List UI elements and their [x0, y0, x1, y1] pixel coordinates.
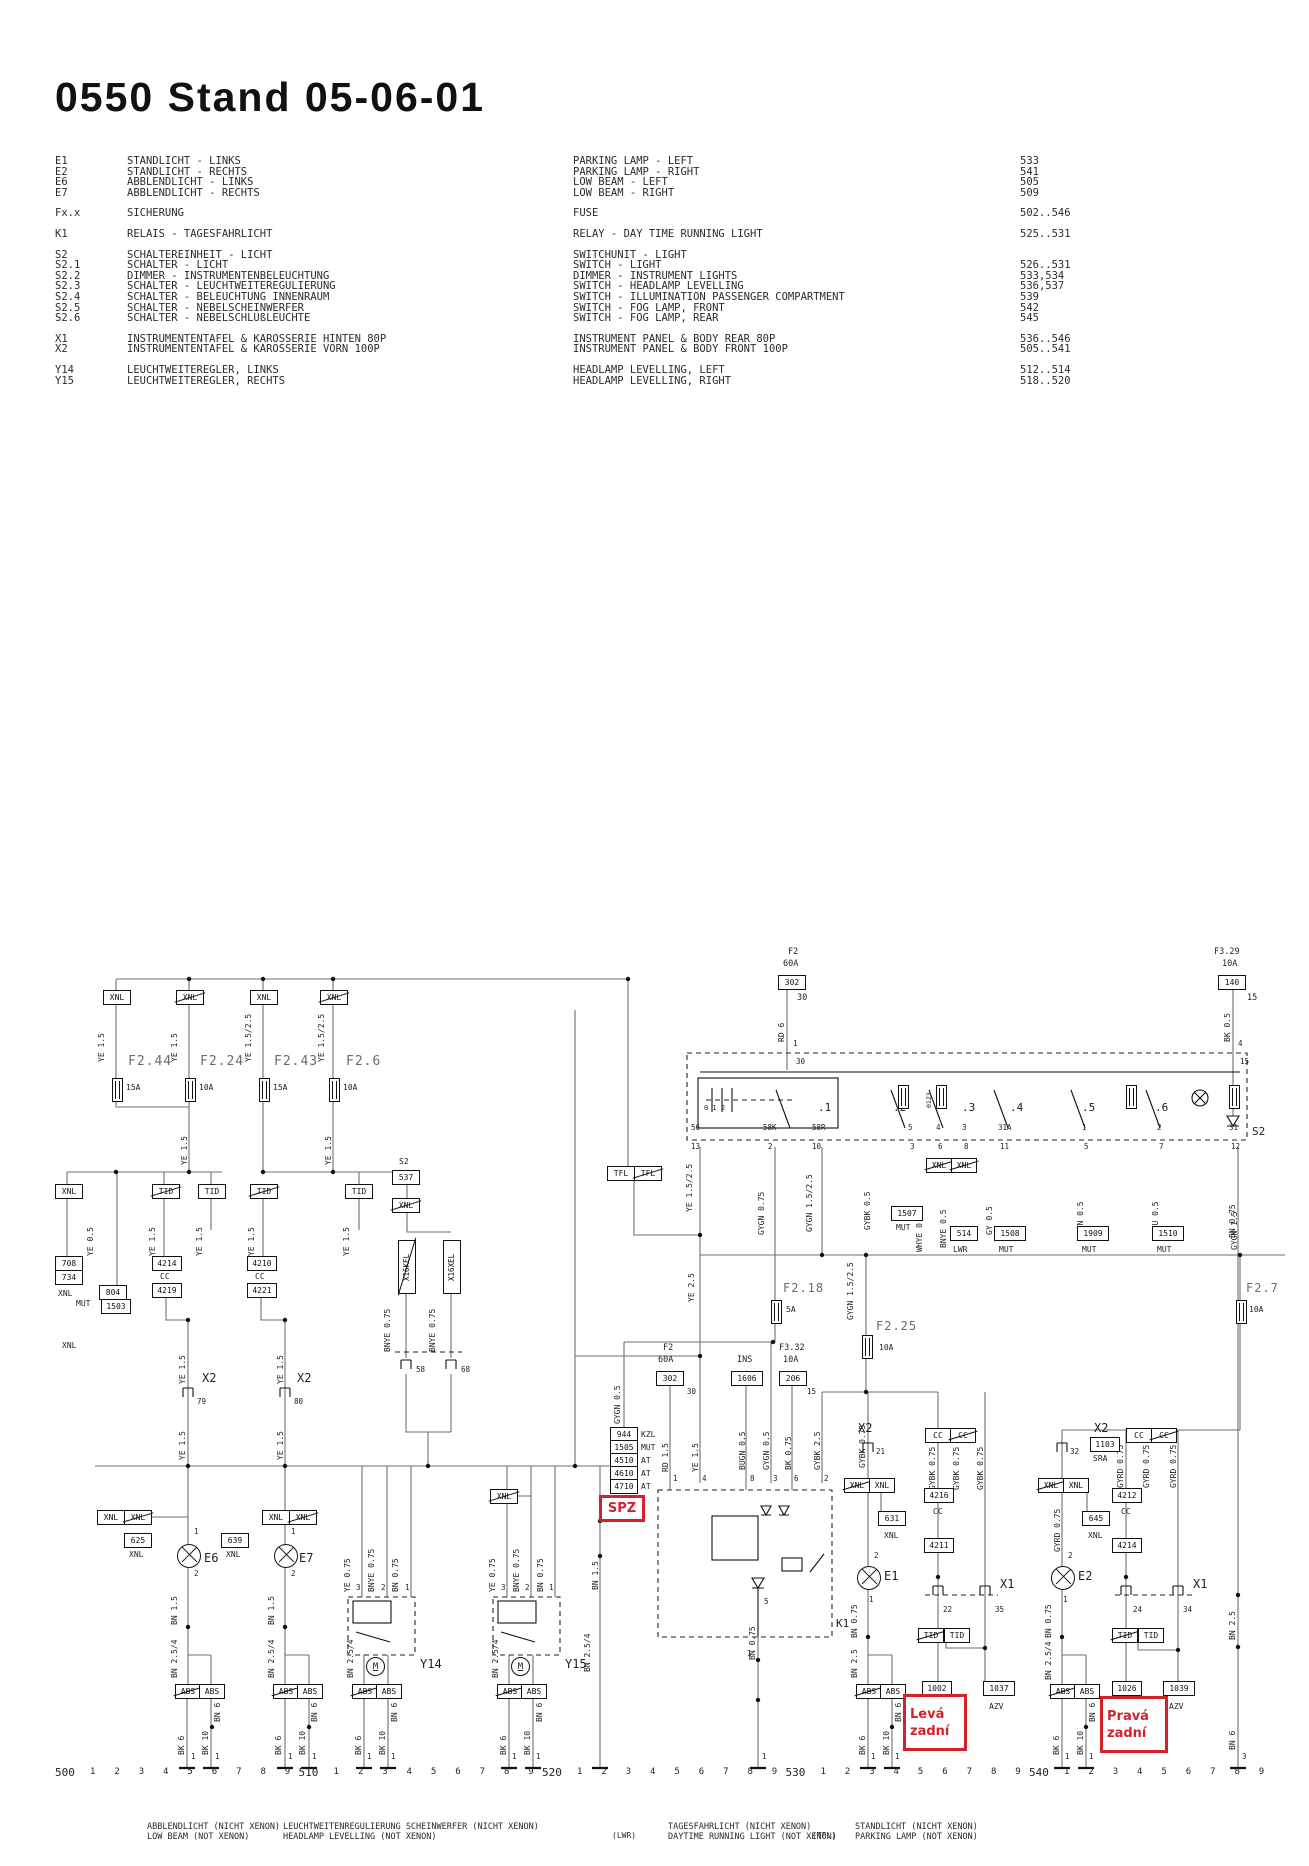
schematic-label: 2: [768, 1143, 773, 1151]
schematic-label: 58: [416, 1366, 425, 1374]
wire-label: BK 10: [524, 1731, 532, 1755]
schematic-label: AZV: [1169, 1703, 1183, 1711]
scale-tick-label: 1: [334, 1767, 339, 1777]
schematic-label: 10: [812, 1143, 821, 1151]
connector-box: 1909: [1077, 1226, 1109, 1241]
fuse-symbol: [112, 1078, 123, 1102]
schematic-label: X1: [1193, 1580, 1207, 1588]
schematic-label: 12: [1231, 1143, 1240, 1151]
schematic-label: 5: [1084, 1143, 1089, 1151]
scale-tick-label: 6: [1186, 1767, 1191, 1777]
schematic-label: 3: [501, 1584, 506, 1592]
schematic-label: 5A: [786, 1306, 796, 1314]
schematic-label: MUT: [1157, 1246, 1171, 1254]
wire-label: BK 10: [1077, 1731, 1085, 1755]
connector-box: TID: [152, 1184, 180, 1199]
scale-tick-label: 1: [1064, 1767, 1069, 1777]
schematic-label: 1: [312, 1753, 317, 1761]
annotation-text: SPZ: [608, 1500, 636, 1517]
schematic-label: 4: [936, 1124, 941, 1132]
schematic-label: Y15: [565, 1660, 587, 1668]
annotation-text: zadní: [1107, 1725, 1146, 1742]
wire-label: YE 1.5: [277, 1431, 285, 1460]
scale-tick-label: 4: [894, 1767, 899, 1777]
connector-box: 1510: [1152, 1226, 1184, 1241]
schematic-label: 2: [874, 1552, 879, 1560]
wire-label: BK 0.75: [785, 1436, 793, 1470]
connector-box: XNL: [869, 1478, 895, 1493]
connector-box: CC: [1151, 1428, 1177, 1443]
connector-box: TID: [198, 1184, 226, 1199]
schematic-label: 2: [381, 1584, 386, 1592]
wire-label: BK 6: [1053, 1736, 1061, 1755]
schematic-label: 5: [908, 1124, 913, 1132]
scale-tick-label: 3: [869, 1767, 874, 1777]
wire-label: GYGN 0.5: [763, 1431, 771, 1470]
schematic-label: 10A: [1249, 1306, 1263, 1314]
schematic-label: 2: [525, 1584, 530, 1592]
schematic-label: 15A: [126, 1084, 140, 1092]
connector-box: 708: [55, 1256, 83, 1271]
connector-box: 1026: [1112, 1681, 1142, 1696]
wire-label: BUGN 0.5: [739, 1431, 747, 1470]
schematic-label: 1: [673, 1475, 678, 1483]
schematic-label: 6: [794, 1475, 799, 1483]
connector-box: ABS: [297, 1684, 323, 1699]
wire-label: GYBK 2.5: [814, 1431, 822, 1470]
schematic-label: 30: [797, 994, 807, 1002]
schematic-label: 13: [691, 1143, 700, 1151]
connector-box: ABS: [856, 1684, 882, 1699]
schematic-label: XNL: [226, 1551, 240, 1559]
connector-box: CC: [925, 1428, 951, 1443]
schematic-label: X2: [1094, 1424, 1108, 1432]
schematic-label: 1: [288, 1753, 293, 1761]
schematic-label: 0 1 2: [704, 1104, 725, 1112]
connector-box: TID: [1112, 1628, 1138, 1643]
connector-box: 1103: [1090, 1437, 1120, 1452]
connector-box: 140: [1218, 975, 1246, 990]
schematic-label: XNL: [1088, 1532, 1102, 1540]
schematic-label: CC: [1121, 1508, 1131, 1516]
connector-box: XNL: [1038, 1478, 1064, 1493]
wire-label: GYGN 0.5: [614, 1385, 622, 1424]
wire-label: YE 1.5: [179, 1431, 187, 1460]
wire-label: YE 2.5: [688, 1273, 696, 1302]
schematic-label: 56: [691, 1124, 700, 1132]
annotation-spz: SPZ: [599, 1495, 645, 1522]
scale-tick-label: 4: [163, 1767, 168, 1777]
component-ref-label: F2.25: [876, 1322, 917, 1330]
wire-label: YE 1.5: [149, 1227, 157, 1256]
connector-box: TID: [250, 1184, 278, 1199]
schematic-label: F2: [663, 1344, 673, 1352]
scale-tick-label: 2: [1088, 1767, 1093, 1777]
wire-label: YE 1.5: [343, 1227, 351, 1256]
wire-label: GYBK 0.5: [864, 1191, 872, 1230]
wire-label: BK 10: [202, 1731, 210, 1755]
schematic-label: E1: [884, 1572, 898, 1580]
scale-tick-label: 5: [918, 1767, 923, 1777]
schematic-label: 1: [536, 1753, 541, 1761]
schematic-label: 2: [1068, 1552, 1073, 1560]
schematic-label: Y14: [420, 1660, 442, 1668]
wire-label: BN 1.5: [592, 1561, 600, 1590]
wire-label: YE 0.75: [344, 1558, 352, 1592]
schematic-label: SRA: [1093, 1455, 1107, 1463]
scale-block-label: 500: [55, 1766, 75, 1779]
wire-label: BK 10: [379, 1731, 387, 1755]
schematic-label: MUT: [641, 1444, 655, 1452]
scale-tick-label: 4: [407, 1767, 412, 1777]
schematic-label: LWR: [953, 1246, 967, 1254]
connector-box: XNL: [320, 990, 348, 1005]
connector-box: 1606: [731, 1371, 763, 1386]
schematic-label: 31: [1229, 1124, 1238, 1132]
wire-label: BN 6: [1229, 1731, 1237, 1750]
scale-block-label: 510: [299, 1766, 319, 1779]
annotation-text: zadní: [910, 1723, 949, 1740]
lamp-e6: [177, 1544, 201, 1568]
schematic-label: CC: [933, 1508, 943, 1516]
connector-box: TID: [345, 1184, 373, 1199]
schematic-label: 4: [1238, 1040, 1243, 1048]
schematic-label: 7: [1159, 1143, 1164, 1151]
connector-box: 302: [778, 975, 806, 990]
wire-label: YE 1.5/2.5: [686, 1164, 694, 1212]
schematic-label: 6: [938, 1143, 943, 1151]
connector-box: TID: [1138, 1628, 1164, 1643]
scale-tick-label: 8: [260, 1767, 265, 1777]
connector-box: ABS: [199, 1684, 225, 1699]
wire-label: BNYE 0.75: [429, 1309, 437, 1352]
wire-label: GY 0.5: [986, 1206, 994, 1235]
schematic-label: 8: [964, 1143, 969, 1151]
connector-box: ABS: [521, 1684, 547, 1699]
schematic-label: MUT: [76, 1300, 90, 1308]
fuse-symbol: [1236, 1300, 1247, 1324]
schematic-label: 5: [764, 1598, 769, 1606]
wire-layer: [0, 0, 1309, 1866]
scale-tick-label: 7: [236, 1767, 241, 1777]
scale-tick-label: 3: [1113, 1767, 1118, 1777]
schematic-label: 1: [1082, 1124, 1087, 1132]
schematic-label: 24: [1133, 1606, 1142, 1614]
wire-label: BN 0.75: [392, 1558, 400, 1592]
schematic-label: AT: [641, 1470, 651, 1478]
wire-label: YE 1.5/2.5: [245, 1014, 253, 1062]
connector-box: X16KEL: [398, 1240, 416, 1294]
annotation-text: Levá: [910, 1706, 944, 1723]
wire-label: YE 0.5: [87, 1227, 95, 1256]
connector-box: 4212: [1112, 1488, 1142, 1503]
schematic-label: 30: [687, 1388, 696, 1396]
schematic-label: .1: [818, 1104, 831, 1112]
connector-box: 804: [99, 1285, 127, 1300]
schematic-label: 1: [194, 1528, 199, 1536]
wire-label: GYRD 0.75: [1170, 1445, 1178, 1488]
connector-box: TFL: [607, 1166, 635, 1181]
wire-label: GYGN 1.5: [1231, 1211, 1239, 1250]
schematic-label: 1: [367, 1753, 372, 1761]
footer-caption-tag: (LWR): [612, 1831, 636, 1840]
wire-label: YE 1.5: [181, 1136, 189, 1165]
wire-label: BNYE 0.75: [513, 1549, 521, 1592]
annotation-leva-zadni: Levázadní: [903, 1694, 967, 1751]
lamp-e2: [1051, 1566, 1075, 1590]
scale-tick-label: 3: [139, 1767, 144, 1777]
connector-box: 4216: [924, 1488, 954, 1503]
schematic-label: F3.32: [779, 1344, 805, 1352]
wire-label: BN 6: [1089, 1703, 1097, 1722]
wire-label: YE 1.5: [179, 1355, 187, 1384]
schematic-label: 1: [793, 1040, 798, 1048]
connector-box: ABS: [352, 1684, 378, 1699]
schematic-label: 60A: [783, 960, 798, 968]
scale-tick-label: 9: [772, 1767, 777, 1777]
connector-box: 4210: [247, 1256, 277, 1271]
connector-box: ABS: [1074, 1684, 1100, 1699]
schematic-label: X1: [1000, 1580, 1014, 1588]
component-ref-label: F2.7: [1246, 1284, 1279, 1292]
component-ref-label: F2.43: [274, 1058, 318, 1066]
wire-label: GYBK 0.75: [977, 1447, 985, 1490]
schematic-label: 32: [1070, 1448, 1079, 1456]
scale-tick-label: 5: [431, 1767, 436, 1777]
wire-label: BN 2.5: [851, 1649, 859, 1678]
wire-label: 0123: [925, 1092, 933, 1108]
connector-box: XNL: [1063, 1478, 1089, 1493]
schematic-label: AZV: [989, 1703, 1003, 1711]
connector-box: 1039: [1163, 1681, 1195, 1696]
wire-label: BN 6: [895, 1703, 903, 1722]
wire-label: BN 6: [214, 1703, 222, 1722]
fuse-symbol: [936, 1085, 947, 1109]
scale-tick-label: 6: [942, 1767, 947, 1777]
scale-tick-label: 6: [699, 1767, 704, 1777]
scale-tick-label: 1: [90, 1767, 95, 1777]
schematic-label: 2: [194, 1570, 199, 1578]
schematic-label: XNL: [62, 1342, 76, 1350]
schematic-label: 79: [197, 1398, 206, 1406]
wire-label: BN 1.5: [171, 1596, 179, 1625]
schematic-label: XNL: [884, 1532, 898, 1540]
schematic-label: 10A: [1222, 960, 1237, 968]
wire-label: GYGN 1.5/2.5: [847, 1262, 855, 1320]
wire-label: YE 1.5: [248, 1227, 256, 1256]
scale-tick-label: 4: [650, 1767, 655, 1777]
schematic-label: 58K: [763, 1124, 777, 1132]
schematic-label: F3.29: [1214, 948, 1240, 956]
connector-box: 206: [779, 1371, 807, 1386]
schematic-label: 80: [294, 1398, 303, 1406]
schematic-label: E2: [1078, 1572, 1092, 1580]
scale-tick-label: 5: [1161, 1767, 1166, 1777]
wire-label: GYBK 0.75: [929, 1447, 937, 1490]
schematic-label: 1: [405, 1584, 410, 1592]
wire-label: BK 10: [883, 1731, 891, 1755]
connector-box: TID: [944, 1628, 970, 1643]
connector-box: XNL: [392, 1198, 420, 1213]
schematic-label: 3: [962, 1124, 967, 1132]
schematic-label: 2: [824, 1475, 829, 1483]
connector-box: XNL: [289, 1510, 317, 1525]
connector-box: TID: [918, 1628, 944, 1643]
connector-box: 1507: [891, 1206, 923, 1221]
schematic-label: 22: [943, 1606, 952, 1614]
scale-tick-label: 3: [626, 1767, 631, 1777]
scale-tick-label: 6: [455, 1767, 460, 1777]
wire-label: YE 1.5: [171, 1033, 179, 1062]
wire-label: BN 2.5/4: [492, 1639, 500, 1678]
schematic-canvas: YE 1.5YE 1.5YE 1.5/2.5YE 1.5/2.5F2.44F2.…: [0, 0, 1309, 1866]
motor-symbol: M: [511, 1657, 530, 1676]
wire-label: BK 6: [178, 1736, 186, 1755]
schematic-label: .6: [1155, 1104, 1168, 1112]
connector-box: 645: [1082, 1511, 1110, 1526]
schematic-label: 1: [762, 1753, 767, 1761]
connector-box: ABS: [497, 1684, 523, 1699]
wire-label: GYGN 0.75: [758, 1192, 766, 1235]
connector-box: XNL: [951, 1158, 977, 1173]
scale-block-label: 520: [542, 1766, 562, 1779]
connector-box: XNL: [250, 990, 278, 1005]
wire-label: BK 6: [355, 1736, 363, 1755]
component-ref-label: F2.24: [200, 1058, 244, 1066]
wire-label: BK 6: [500, 1736, 508, 1755]
connector-box: 4221: [247, 1283, 277, 1298]
scale-tick-label: 7: [967, 1767, 972, 1777]
schematic-label: E7: [299, 1554, 313, 1562]
connector-box: XNL: [490, 1489, 518, 1504]
wire-label: BK 6: [859, 1736, 867, 1755]
connector-box: CC: [950, 1428, 976, 1443]
connector-box: 631: [878, 1511, 906, 1526]
fuse-symbol: [259, 1078, 270, 1102]
wire-label: YE 1.5: [196, 1227, 204, 1256]
fuse-symbol: [771, 1300, 782, 1324]
connector-box: 1503: [101, 1299, 131, 1314]
schematic-label: 58R: [812, 1124, 826, 1132]
schematic-label: 1: [1065, 1753, 1070, 1761]
annotation-prava-zadni: Pravázadní: [1100, 1696, 1168, 1753]
scale-block-label: 540: [1029, 1766, 1049, 1779]
wire-label: GYRD 0.75: [1143, 1445, 1151, 1488]
wire-label: GYBK 0.75: [953, 1447, 961, 1490]
annotation-text: Pravá: [1107, 1708, 1149, 1725]
connector-box: ABS: [273, 1684, 299, 1699]
schematic-label: 10A: [783, 1356, 798, 1364]
connector-box: XNL: [176, 990, 204, 1005]
connector-box: XNL: [103, 990, 131, 1005]
wire-label: RD 6: [778, 1023, 786, 1042]
schematic-label: CC: [255, 1273, 265, 1281]
connector-box: XNL: [124, 1510, 152, 1525]
schematic-label: 1: [1089, 1753, 1094, 1761]
schematic-label: 1: [869, 1596, 874, 1604]
connector-box: 4214: [1112, 1538, 1142, 1553]
schematic-label: 10A: [199, 1084, 213, 1092]
connector-box: 537: [392, 1170, 420, 1185]
footer-caption: ABBLENDLICHT (NICHT XENON) LOW BEAM (NOT…: [147, 1822, 280, 1842]
schematic-label: 15: [1240, 1058, 1249, 1066]
connector-box: 625: [124, 1533, 152, 1548]
schematic-label: 15: [1247, 994, 1257, 1002]
wire-label: BN 0.75: [851, 1604, 859, 1638]
scale-tick-label: 8: [991, 1767, 996, 1777]
footer-caption: LEUCHTWEITENREGULIERUNG SCHEINWERFER (NI…: [283, 1822, 539, 1842]
schematic-label: 1: [512, 1753, 517, 1761]
scale-tick-label: 5: [674, 1767, 679, 1777]
schematic-label: 1: [549, 1584, 554, 1592]
fuse-symbol: [329, 1078, 340, 1102]
scale-tick-label: 6: [212, 1767, 217, 1777]
connector-box: 4214: [152, 1256, 182, 1271]
connector-box: X16XEL: [443, 1240, 461, 1294]
schematic-label: MUT: [896, 1224, 910, 1232]
scale-tick-label: 8: [1234, 1767, 1239, 1777]
connector-box: 1037: [983, 1681, 1015, 1696]
schematic-label: KZL: [641, 1431, 655, 1439]
wire-label: GYBK 0.75: [859, 1425, 867, 1468]
component-ref-label: F2.6: [346, 1058, 381, 1066]
schematic-label: F2: [788, 948, 798, 956]
component-ref-label: F2.18: [783, 1284, 824, 1292]
scale-tick-label: 7: [1210, 1767, 1215, 1777]
wire-label: BN 2.5/4: [171, 1639, 179, 1678]
connector-box: 4219: [152, 1283, 182, 1298]
schematic-label: 15: [807, 1388, 816, 1396]
schematic-label: 2: [291, 1570, 296, 1578]
schematic-label: .4: [1010, 1104, 1023, 1112]
wire-label: YE 1.5: [692, 1443, 700, 1472]
wire-label: YE 1.5: [325, 1136, 333, 1165]
schematic-label: AT: [641, 1457, 651, 1465]
wire-label: BNYE 0.75: [368, 1549, 376, 1592]
wire-label: BNYE 0.75: [384, 1309, 392, 1352]
motor-symbol: M: [366, 1657, 385, 1676]
footer-caption-tag: (TFL): [812, 1831, 836, 1840]
connector-box: ABS: [376, 1684, 402, 1699]
schematic-label: 1: [191, 1753, 196, 1761]
schematic-label: 3: [356, 1584, 361, 1592]
schematic-label: X2: [202, 1374, 216, 1382]
wire-label: BN 1.5: [268, 1596, 276, 1625]
schematic-label: 31A: [998, 1124, 1012, 1132]
schematic-label: 1: [1063, 1596, 1068, 1604]
connector-box: XNL: [262, 1510, 290, 1525]
wire-label: YE 0.75: [489, 1558, 497, 1592]
schematic-label: 1: [747, 1650, 752, 1658]
wire-label: BN 2.5: [1229, 1611, 1237, 1640]
schematic-label: 3: [910, 1143, 915, 1151]
schematic-label: 1: [895, 1753, 900, 1761]
fuse-symbol: [1126, 1085, 1137, 1109]
schematic-label: XNL: [58, 1290, 72, 1298]
wire-label: YE 1.5/2.5: [318, 1014, 326, 1062]
connector-box: ABS: [175, 1684, 201, 1699]
scale-tick-label: 2: [845, 1767, 850, 1777]
schematic-label: 21: [876, 1448, 885, 1456]
scale-tick-label: 7: [480, 1767, 485, 1777]
wire-label: BK 10: [299, 1731, 307, 1755]
connector-box: 4211: [924, 1538, 954, 1553]
scale-tick-label: 5: [187, 1767, 192, 1777]
wire-label: BNYE 0.5: [940, 1209, 948, 1248]
wire-label: BN 0.75: [537, 1558, 545, 1592]
schematic-label: S2: [1252, 1128, 1265, 1136]
schematic-label: K1: [836, 1620, 849, 1628]
